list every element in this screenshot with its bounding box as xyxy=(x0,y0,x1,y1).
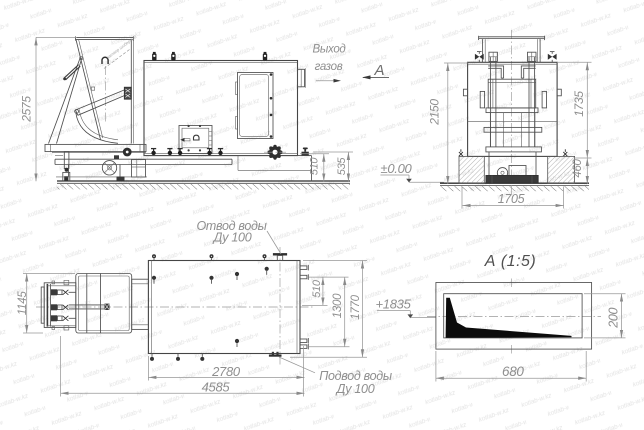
svg-text:Выход: Выход xyxy=(312,44,345,56)
svg-text:510: 510 xyxy=(309,157,321,176)
svg-text:1705: 1705 xyxy=(498,192,525,206)
svg-text:Ду 100: Ду 100 xyxy=(335,382,375,396)
svg-text:±0.00: ±0.00 xyxy=(381,161,413,176)
svg-text:4585: 4585 xyxy=(202,380,231,395)
svg-text:1770: 1770 xyxy=(350,294,362,319)
svg-text:+1835: +1835 xyxy=(375,296,411,311)
svg-text:2150: 2150 xyxy=(428,99,442,126)
svg-text:200: 200 xyxy=(607,307,621,328)
svg-text:510: 510 xyxy=(311,279,323,298)
svg-text:А (1:5): А (1:5) xyxy=(484,253,537,270)
svg-text:2780: 2780 xyxy=(211,364,241,379)
svg-text:535: 535 xyxy=(336,157,348,176)
svg-text:460: 460 xyxy=(572,158,584,177)
svg-text:1735: 1735 xyxy=(572,91,586,117)
svg-text:Ду 100: Ду 100 xyxy=(212,230,252,244)
svg-text:1145: 1145 xyxy=(17,291,29,315)
svg-text:2575: 2575 xyxy=(20,96,34,123)
svg-text:680: 680 xyxy=(502,364,524,379)
svg-text:А: А xyxy=(373,62,384,79)
svg-text:газов: газов xyxy=(315,61,343,73)
svg-text:1300: 1300 xyxy=(332,293,344,318)
svg-text:Подвод воды: Подвод воды xyxy=(319,369,392,383)
